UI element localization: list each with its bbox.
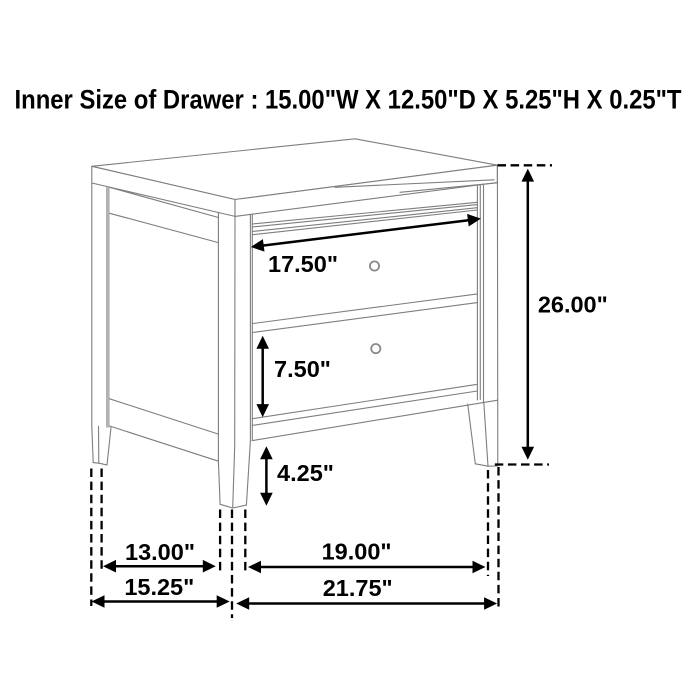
svg-text:26.00": 26.00" (538, 292, 608, 318)
svg-text:19.00": 19.00" (322, 539, 392, 565)
svg-text:15.25": 15.25" (124, 574, 194, 600)
svg-text:7.50": 7.50" (274, 356, 331, 382)
svg-text:17.50": 17.50" (268, 251, 338, 277)
svg-text:4.25": 4.25" (277, 460, 334, 486)
svg-text:Inner Size of Drawer : 15.00"W: Inner Size of Drawer : 15.00"W X 12.50"D… (15, 85, 682, 115)
svg-text:21.75": 21.75" (323, 575, 393, 601)
svg-text:13.00": 13.00" (125, 539, 195, 565)
